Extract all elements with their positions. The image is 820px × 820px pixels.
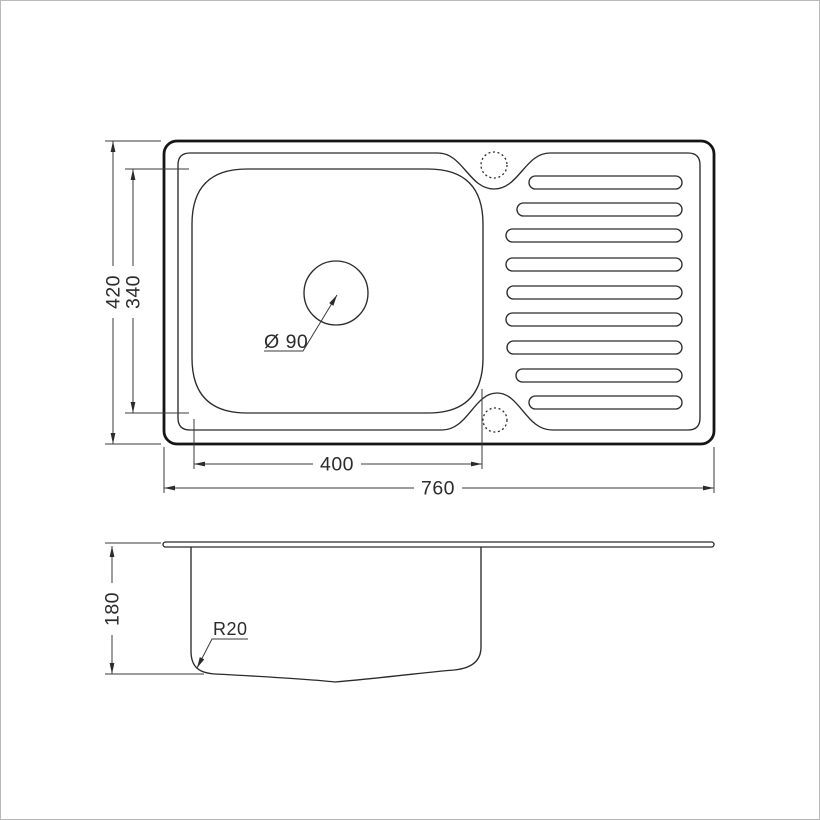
- dim-760: 760: [164, 447, 714, 500]
- dim-180: 180: [102, 543, 205, 674]
- leader-line: [197, 639, 248, 668]
- dim-r20: R20: [197, 619, 248, 668]
- sink-technical-drawing: Ø 90 420 340: [0, 0, 820, 820]
- dim-760-label: 760: [421, 478, 455, 500]
- dim-r20-label: R20: [213, 619, 248, 639]
- drain-diameter-label: Ø 90: [264, 331, 308, 353]
- leader-arrow: [197, 657, 204, 668]
- rim-flange-profile: [163, 542, 714, 547]
- arrowhead: [110, 546, 115, 557]
- arrowhead: [471, 462, 482, 467]
- arrowhead: [131, 402, 136, 413]
- bowl-section-profile: [191, 547, 481, 682]
- arrowhead: [703, 486, 714, 491]
- top-view: Ø 90 420 340: [103, 141, 715, 500]
- drawing-svg: Ø 90 420 340: [1, 1, 820, 820]
- dim-340-label: 340: [123, 275, 145, 309]
- dim-420-label: 420: [103, 275, 125, 309]
- arrowhead: [194, 462, 205, 467]
- arrowhead: [110, 663, 115, 674]
- arrowhead: [131, 169, 136, 180]
- dim-400-label: 400: [320, 454, 354, 476]
- arrowhead: [164, 486, 175, 491]
- side-view: 180 R20: [102, 542, 715, 682]
- arrowhead: [111, 433, 116, 444]
- dim-180-label: 180: [102, 592, 124, 626]
- bowl-outline: [192, 169, 483, 413]
- arrowhead: [111, 141, 116, 152]
